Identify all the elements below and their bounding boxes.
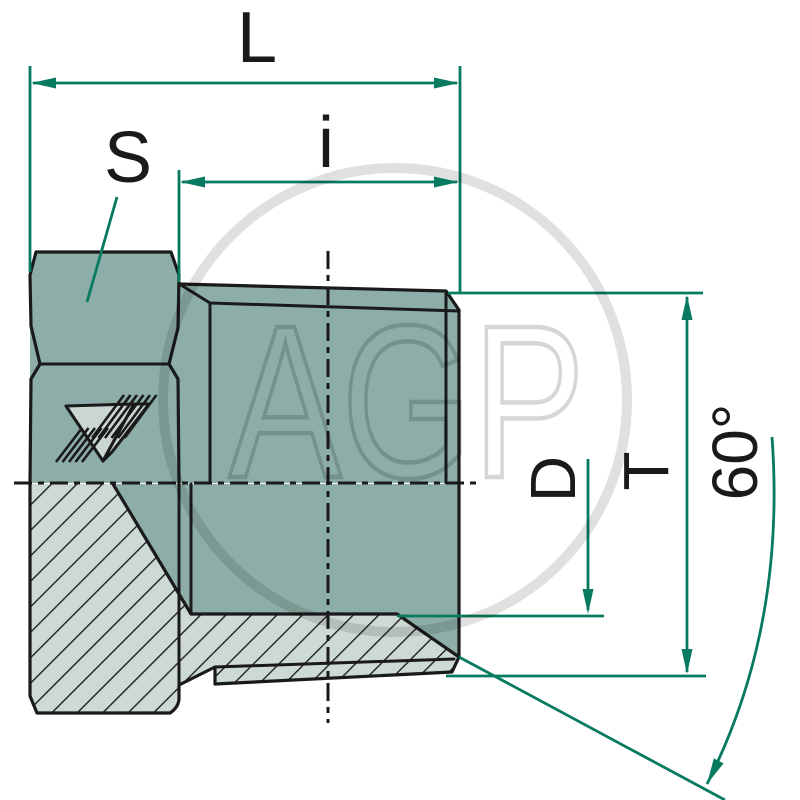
dimension-label-angle: 60° <box>699 404 771 501</box>
arrowhead-arc <box>707 758 724 784</box>
angle-leg-line <box>459 657 725 800</box>
dimension-label-S: S <box>104 118 152 198</box>
arrowhead-bottom <box>583 589 594 614</box>
technical-drawing-canvas: L i S T D 60° AGP <box>0 0 800 800</box>
arrowhead-left <box>180 177 205 188</box>
dimension-label-D: D <box>517 456 589 502</box>
arrowhead-bottom <box>682 649 693 674</box>
dimension-i: i <box>179 103 459 282</box>
threaded-body-fill <box>179 284 459 483</box>
dimension-label-T: T <box>610 451 682 490</box>
section-view <box>30 484 459 713</box>
arrowhead-right <box>434 177 459 188</box>
fitting-technical-drawing: L i S T D 60° AGP <box>0 0 800 800</box>
arrowhead-right <box>434 78 459 89</box>
arrowhead-top <box>682 295 693 320</box>
dimension-label-L: L <box>237 0 277 78</box>
dimension-label-i: i <box>318 103 334 183</box>
dimension-L: L <box>30 0 460 292</box>
arrowhead-left <box>31 78 56 89</box>
